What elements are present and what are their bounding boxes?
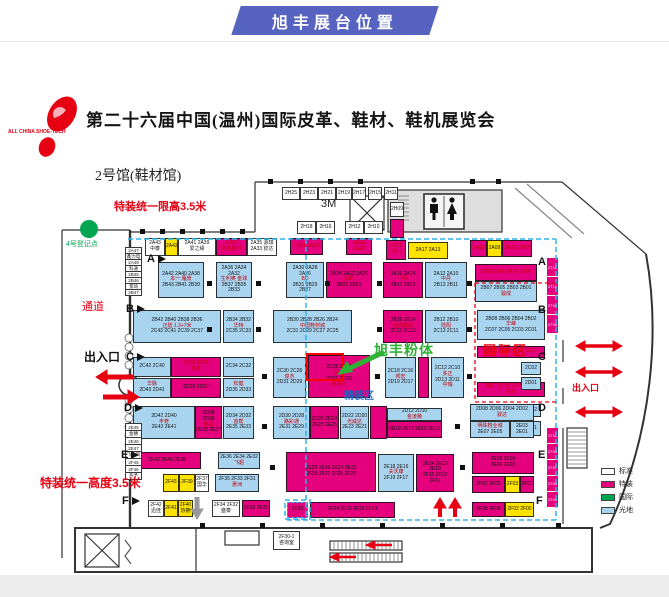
booth[interactable]: 2D26 2D242E27 2E25 (310, 406, 339, 439)
legend-item: 特装 (601, 479, 633, 489)
booth[interactable]: 2B08 2B06 2B04 2B02华峰2C07 2C05 2C03 2C01 (477, 310, 545, 340)
booth[interactable]: 2A24 2A22 2A20源利2B23 2B21 (326, 262, 372, 298)
booth[interactable]: 2E42 2E40 2E38 (133, 452, 201, 469)
booth[interactable]: 2T09 (546, 443, 559, 460)
booth[interactable]: 鑫力电 (125, 253, 142, 260)
booth[interactable]: 2A31 2A29 (290, 238, 323, 255)
booth[interactable]: 2B12 2B10陆阳2C13 2C11 (425, 310, 467, 343)
booth[interactable]: 2H11 (384, 187, 398, 200)
row-marker: F (536, 495, 543, 507)
booth[interactable]: 2F37国华 (195, 474, 209, 492)
booth[interactable]: 2B30 2B28 2B26 2B24中国鞋材城2C31 2C29 2C27 2… (273, 310, 352, 343)
booth[interactable]: 2D01 (521, 377, 541, 390)
booth-stack: 2T122T102T082T06 (546, 258, 559, 334)
booth-stack: 2A47鑫力电2A49科通2B452B46景琦2B47 (125, 248, 142, 296)
booth[interactable]: 2T11 (546, 427, 559, 444)
booth[interactable]: 2A25 2A23 (346, 238, 372, 255)
booth[interactable]: 2E03 2E01 (510, 421, 534, 438)
entrance-left-label: 出入口 (84, 351, 120, 364)
booth[interactable]: 2T08 (546, 295, 559, 315)
booth[interactable]: 2H17 (352, 187, 366, 200)
booth[interactable] (390, 219, 404, 238)
booth[interactable]: 2F30 (287, 502, 308, 518)
hall-label: 2号馆(鞋材馆) (95, 170, 181, 185)
booth[interactable]: 2E18 2E16夫沃康2F19 2F17 (378, 454, 414, 492)
legend: 标准特装国际光地 (601, 466, 633, 518)
booth[interactable]: 2A212A19 (386, 240, 406, 260)
row-marker: A (147, 253, 166, 265)
booth-layer: 2A43中泰2A422A41 2A39爱之缘2A37扬名鞋材2A35 源琪2A3… (0, 0, 669, 597)
floorplan-page: 旭丰展台位置 ALL CHINA SHOE-TECH 第二十六届中国(温州)国际… (0, 0, 669, 597)
booth[interactable]: 2A16 2A14飞扬2B17 2B15 (383, 262, 423, 298)
booth[interactable]: 2T10 (546, 276, 559, 296)
booth[interactable]: 2D39 2D37 (171, 378, 221, 398)
booth[interactable]: 2B34 2B32华特2C35 2C33 (223, 310, 254, 343)
booth[interactable]: 2D34 2D32首帮2E35 2E33 (223, 406, 254, 439)
three-m-label: 3M (321, 199, 336, 211)
booth[interactable]: 2A11 (470, 240, 487, 257)
legend-swatch (601, 481, 615, 488)
legend-swatch (601, 468, 615, 475)
booth[interactable]: 2F41 (164, 500, 178, 517)
legend-item: 标准 (601, 466, 633, 476)
legend-label: 特装 (619, 479, 633, 489)
booth[interactable]: 2A12 2A10中丹2B13 2B11 (425, 262, 467, 298)
registration-label: 4号登记点 (66, 241, 98, 248)
booth[interactable]: 2F30-1咨询室 (273, 531, 300, 550)
booth[interactable]: 2F43 (163, 474, 179, 492)
booth[interactable]: 2F39 (179, 474, 195, 492)
booth[interactable]: 松健2D35 2D33 (223, 378, 254, 398)
booth[interactable]: 2H15 (368, 187, 382, 200)
booth[interactable]: 2F42迅佳 (148, 500, 164, 517)
legend-item: 国际 (601, 492, 633, 502)
booth[interactable]: 2A42 (165, 238, 178, 256)
intl-zone-label: 国际区 (483, 344, 528, 358)
booth[interactable]: 2H25 (282, 187, 300, 200)
booth[interactable]: 2A36 2A34 2A32生利奥 金球2B37 2B35 2B33 (216, 262, 252, 298)
booth[interactable]: 2F03 (505, 476, 520, 493)
legend-label: 光地 (619, 505, 633, 515)
booth[interactable]: 2A17 2A13 (408, 242, 448, 259)
booth[interactable]: 2F34 2F32盛泰 (212, 500, 240, 517)
booth[interactable]: 2E28 2E26 2E24 2E222F29 2F27 2F25 2F23 (286, 452, 376, 492)
height-limit-top: 特装统一限高3.5米 (114, 202, 206, 214)
aisle-label: 通道 (82, 302, 104, 314)
booth[interactable]: 2A30 2A28 2A26BD2B31 2B29 2B27 (286, 262, 324, 298)
booth[interactable]: 2F08 2F06 (472, 502, 505, 517)
row-marker: C (126, 351, 145, 363)
booth[interactable]: 2A37扬名鞋材 (216, 238, 247, 256)
row-marker: E (538, 449, 545, 461)
height-limit-bottom: 特装统一高度3.5米 (40, 477, 141, 490)
booth[interactable]: 2B07 2B05 2B03 2B01骏成 (475, 281, 537, 302)
target-booth-label: 旭丰粉体 (374, 343, 434, 358)
legend-label: 标准 (619, 466, 633, 476)
booth[interactable]: 2H16 (316, 221, 335, 234)
legend-item: 光地 (601, 505, 633, 515)
booth[interactable]: 2H10 (364, 221, 383, 234)
booth[interactable]: 2C30 2C28俊杰2D31 2D29 (273, 357, 306, 398)
booth[interactable]: 2T03 (546, 491, 559, 508)
booth[interactable]: 2T07 (546, 459, 559, 476)
booth[interactable]: 2F07 2F05 (472, 476, 505, 493)
booth[interactable]: 2T06 (546, 314, 559, 334)
booth[interactable]: 2E14 2E12 2E102F15 2F13 2F11 (416, 454, 454, 492)
fine-zone-label: 精装区 (344, 392, 374, 403)
booth[interactable]: 2D08 2D06 2D04 2D02骏达 (470, 404, 534, 421)
booth[interactable]: 2H18 (297, 221, 316, 234)
booth[interactable]: 2D30 2D28路彩通2E31 2E29 (273, 406, 310, 439)
booth[interactable]: 2B16 2B14台湾联成2C17 2C15 (383, 310, 423, 343)
booth[interactable]: 2D22 2D20光威达2E23 2E21 (340, 406, 369, 439)
booth[interactable]: 2H19 (336, 187, 352, 200)
booth[interactable] (418, 357, 429, 398)
booth[interactable]: 2E19 2E17 2E15 2E13 (387, 421, 442, 438)
booth[interactable]: 2F35 2F33 2F31惠洲 (215, 474, 259, 492)
booth[interactable]: 2F28 2F26 (242, 500, 270, 517)
row-marker: E (121, 449, 139, 461)
booth[interactable]: 2F24 2F22 2F20 2F18 (310, 502, 395, 518)
booth[interactable]: 2E08 2E062E04 2E02 (472, 452, 534, 474)
booth[interactable]: 2T12 (546, 257, 559, 277)
booth[interactable]: 2F40协拥 (178, 500, 193, 517)
row-marker: C (538, 351, 546, 363)
booth[interactable]: 明珠鞋业城2E07 2E05 (470, 421, 510, 438)
row-marker: D (124, 402, 143, 414)
booth[interactable]: 2C18 2C16邦宏2D19 2D17 (385, 357, 416, 398)
booth[interactable]: 2B47 (125, 289, 142, 296)
row-marker: D (538, 402, 546, 414)
legend-swatch (601, 507, 615, 514)
booth[interactable]: 2D38 2D36佳姿2E39 2E37 (195, 406, 222, 439)
booth[interactable]: 2E36 2E34 2E32飞超 (218, 452, 260, 469)
booth[interactable]: 2C34 2C32 (223, 357, 254, 377)
row-marker: A (538, 256, 546, 268)
booth[interactable]: 2H09 (390, 202, 404, 217)
booth[interactable]: 2C38 2C36焕发 (171, 357, 221, 377)
booth[interactable]: 2H12 (345, 221, 364, 234)
row-marker: F (122, 495, 140, 507)
booth[interactable]: 2T05 (546, 475, 559, 492)
booth[interactable]: 2F01 (520, 476, 534, 493)
booth[interactable]: 2A35 源琪2A33 钦达 (247, 238, 277, 256)
booth[interactable] (370, 406, 387, 439)
booth[interactable]: 2D12 2D10金凌薇 (387, 408, 442, 421)
booth[interactable]: 2H23 (300, 187, 318, 200)
booth-stack: 2T112T092T072T052T03 (546, 428, 559, 508)
row-marker: B (538, 304, 546, 316)
booth[interactable]: 2A08 2A06 2A04 2A02 (475, 264, 537, 281)
booth[interactable]: 2C12 2C10多正2D13 2D11中瑞 (431, 357, 464, 398)
legend-label: 国际 (619, 492, 633, 502)
row-marker: B (126, 303, 145, 315)
legend-swatch (601, 494, 615, 501)
booth[interactable]: 2B42 2B40 2B38 2B36正陆 1.3+7米2C43 2C41 2C… (133, 310, 221, 343)
booth[interactable]: 2A09 (487, 240, 502, 257)
entrance-right-label: 出入口 (572, 384, 599, 393)
booth[interactable]: 华脉2D43 2D41 (133, 378, 171, 398)
booth[interactable]: 2F02 2F00 (505, 502, 534, 517)
booth[interactable]: 2A05 2A03 (502, 240, 532, 257)
booth[interactable]: 2C02 (521, 362, 541, 375)
booth[interactable]: 2A41 2A39爱之缘 (178, 238, 216, 256)
booth[interactable]: 2A42 2A40 2A38本一 雁景2B43 2B41 2B39 (158, 262, 204, 298)
